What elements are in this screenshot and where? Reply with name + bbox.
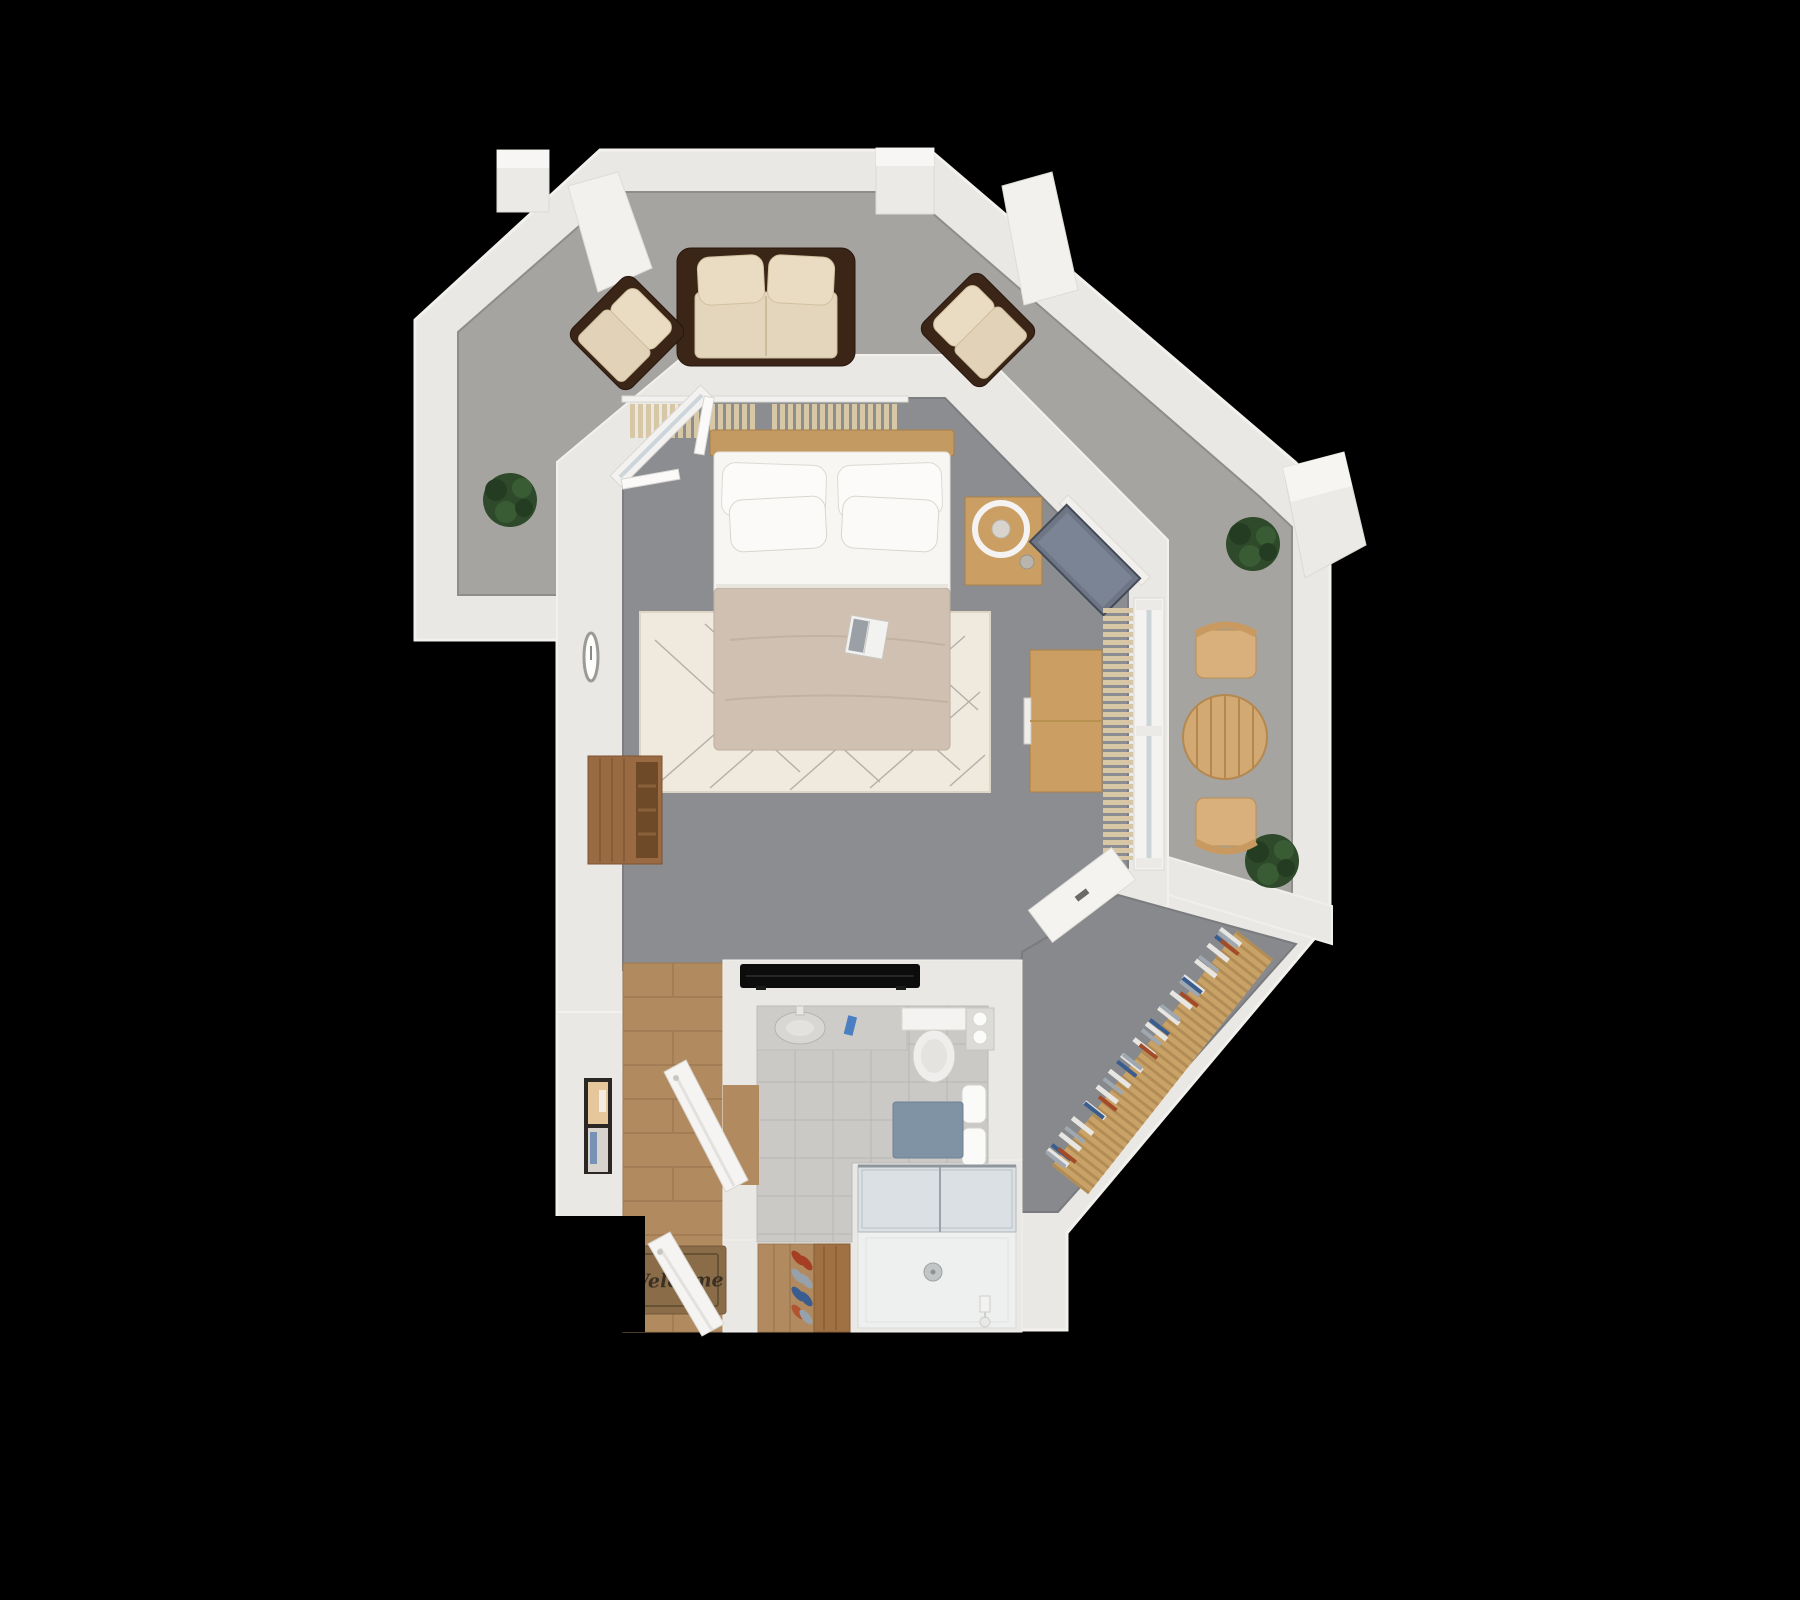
book-on-bed <box>845 615 889 659</box>
plant-terrace-upper-right <box>1226 517 1280 571</box>
dresser <box>1024 650 1102 792</box>
pillow <box>841 496 940 553</box>
pillow <box>729 496 828 553</box>
shower-glass <box>858 1166 1016 1232</box>
shoe-closet <box>758 1244 850 1332</box>
wall-clock <box>584 633 598 681</box>
bathroom-vanity <box>757 1006 907 1050</box>
pillar-top-left <box>497 150 549 212</box>
outdoor-sofa <box>677 248 855 366</box>
outdoor-chair-top <box>1196 625 1256 678</box>
floorplan-canvas: Welcome <box>0 0 1800 1600</box>
shower-fixture <box>980 1296 990 1327</box>
outdoor-chair-bottom <box>1196 798 1256 851</box>
double-bed <box>710 430 954 750</box>
sliding-door <box>1134 598 1164 870</box>
bath-mat <box>893 1102 963 1158</box>
wall-picture <box>584 1078 612 1174</box>
floorplan-render: Welcome <box>0 0 1800 1600</box>
flat-tv <box>740 964 920 990</box>
bed-blanket <box>714 588 950 750</box>
pillar-top-right <box>876 148 934 214</box>
shower <box>858 1166 1016 1328</box>
plant-terrace-left <box>483 473 537 527</box>
wood-cabinet <box>588 756 662 864</box>
outdoor-round-table <box>1183 695 1267 779</box>
rolled-towels <box>966 1008 994 1050</box>
entry-door-void <box>545 1216 645 1332</box>
